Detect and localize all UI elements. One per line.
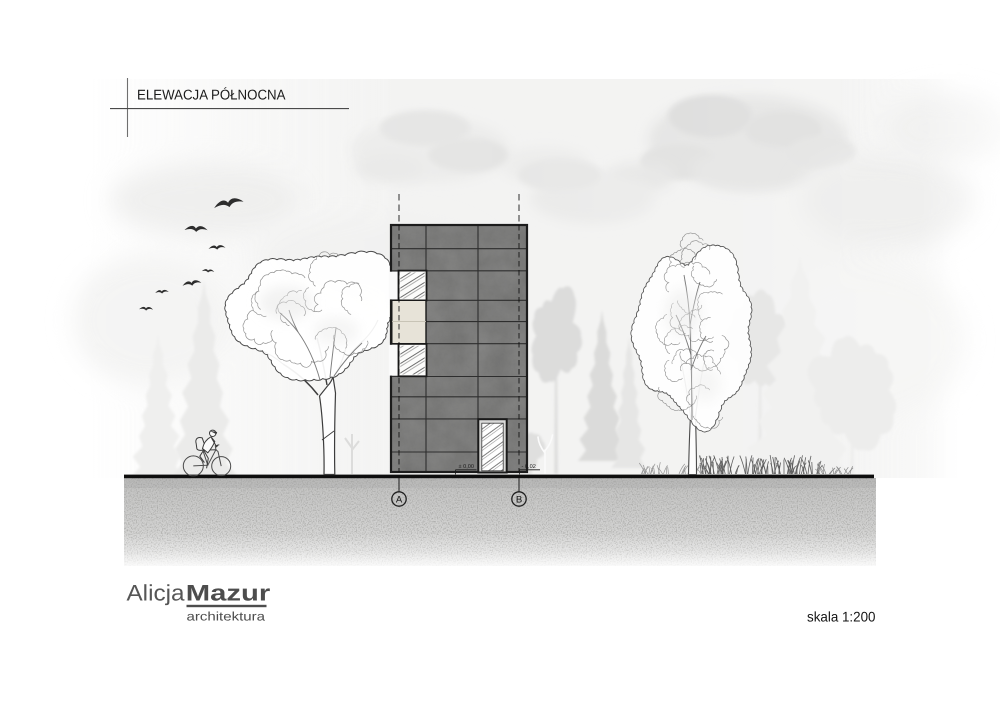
svg-text:ELEWACJA PÓŁNOCNA: ELEWACJA PÓŁNOCNA [137, 87, 286, 104]
svg-text:skala 1:200: skala 1:200 [807, 609, 876, 625]
svg-text:Mazur: Mazur [186, 581, 271, 606]
svg-text:B: B [516, 494, 522, 505]
svg-text:Alicja: Alicja [127, 581, 186, 606]
svg-text:architektura: architektura [187, 610, 266, 624]
svg-text:- 0,02: - 0,02 [522, 464, 536, 470]
svg-text:A: A [396, 494, 403, 505]
svg-text:± 0,00: ± 0,00 [459, 464, 475, 470]
